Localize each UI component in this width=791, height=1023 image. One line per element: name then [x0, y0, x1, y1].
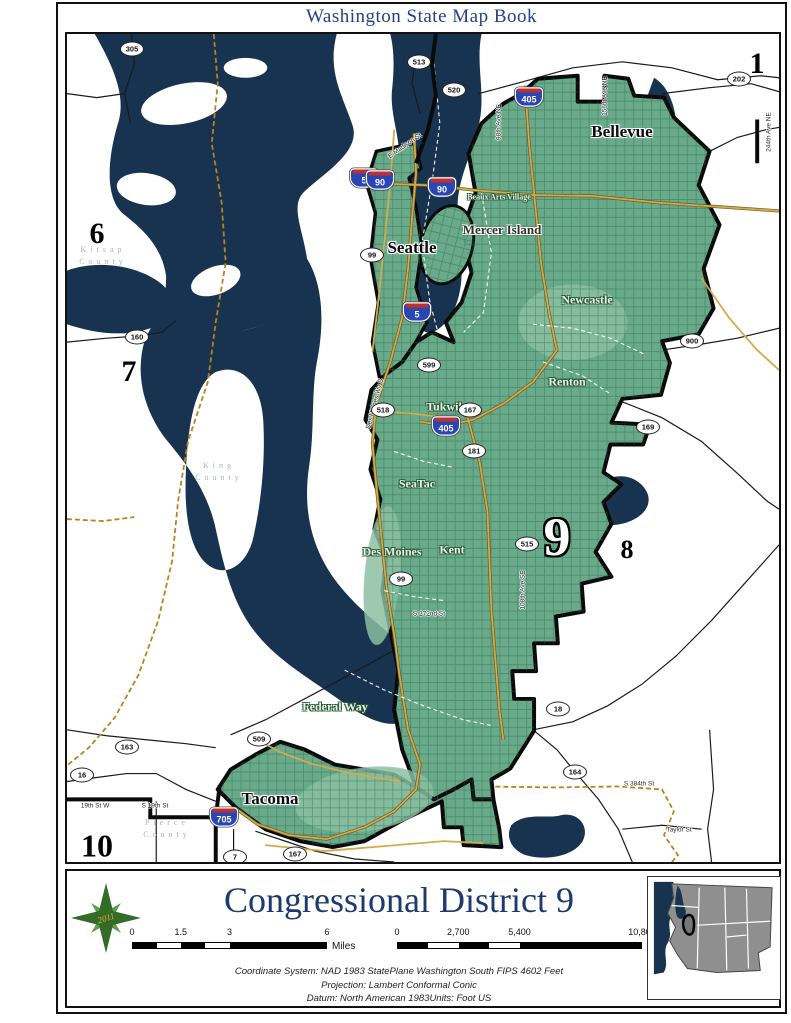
meters-bar-segments [397, 942, 642, 949]
meters-scale-bar: 0 2,700 5,400 10,800 Meters [397, 927, 642, 961]
legend-panel: 2011 Congressional District 9 0 1.5 3 6 … [65, 869, 781, 1008]
meters-tick: 5,400 [508, 927, 531, 937]
datum-note: Datum: North American 1983Units: Foot US [149, 993, 649, 1004]
miles-unit-label: Miles [332, 941, 355, 952]
main-map: 1678910SeattleBellevueTacomaMercer Islan… [65, 32, 781, 864]
projection-note: Projection: Lambert Conformal Conic [149, 980, 649, 991]
compass-rose-icon: 2011 [71, 883, 141, 953]
state-inset-map [647, 876, 781, 1000]
map-canvas [67, 34, 779, 862]
miles-bar-segments [132, 942, 327, 949]
miles-tick: 6 [324, 927, 329, 937]
miles-tick: 1.5 [174, 927, 187, 937]
miles-scale-bar: 0 1.5 3 6 Miles [132, 927, 327, 961]
meters-tick: 0 [394, 927, 399, 937]
inset-district-9-highlight [683, 915, 694, 934]
page-title: Washington State Map Book [306, 6, 537, 27]
coordinate-system-note: Coordinate System: NAD 1983 StatePlane W… [149, 966, 649, 977]
map-book-header: Washington State Map Book [56, 6, 787, 28]
miles-tick: 3 [227, 927, 232, 937]
legend-title: Congressional District 9 [149, 879, 649, 921]
meters-tick: 2,700 [447, 927, 470, 937]
miles-tick: 0 [129, 927, 134, 937]
washington-state-outline [648, 877, 778, 997]
